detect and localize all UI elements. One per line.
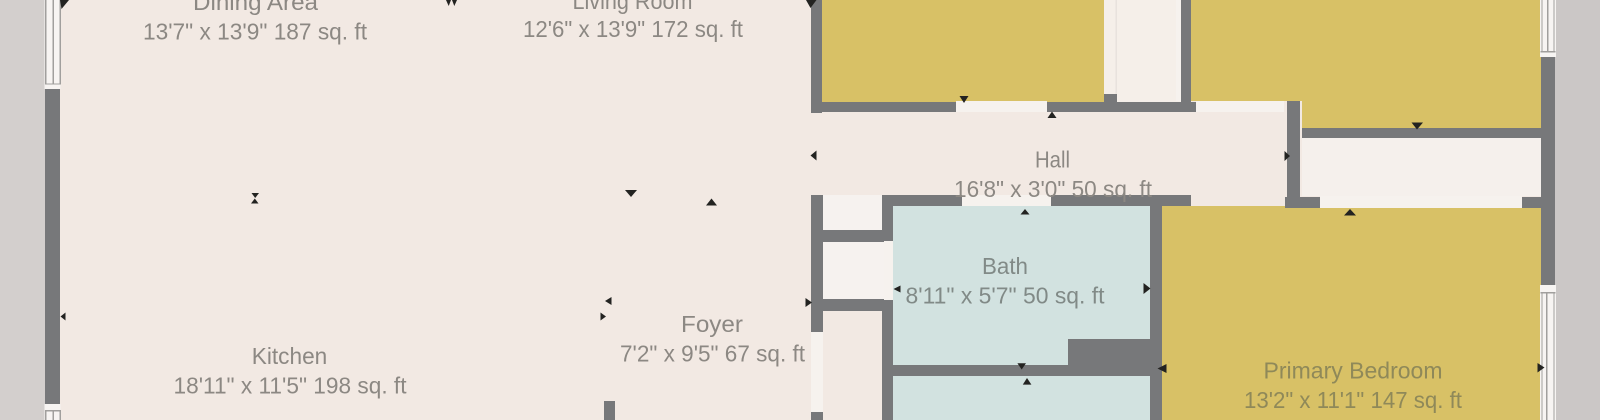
svg-text:12'6" x 13'9" 172 sq. ft: 12'6" x 13'9" 172 sq. ft — [523, 16, 744, 42]
svg-text:Foyer: Foyer — [681, 311, 743, 337]
svg-text:7'2" x 9'5" 67 sq. ft: 7'2" x 9'5" 67 sq. ft — [620, 341, 806, 367]
svg-text:Living Room: Living Room — [573, 0, 693, 14]
svg-text:Primary Bedroom: Primary Bedroom — [1264, 358, 1443, 384]
svg-text:Hall: Hall — [1035, 147, 1070, 173]
svg-text:16'8" x 3'0" 50 sq. ft: 16'8" x 3'0" 50 sq. ft — [954, 176, 1153, 202]
svg-text:Dining Area: Dining Area — [193, 0, 318, 15]
svg-text:13'2" x 11'1" 147 sq. ft: 13'2" x 11'1" 147 sq. ft — [1244, 387, 1463, 413]
svg-text:Kitchen: Kitchen — [252, 343, 328, 369]
svg-text:13'7" x 13'9" 187 sq. ft: 13'7" x 13'9" 187 sq. ft — [143, 19, 368, 45]
svg-text:Bath: Bath — [982, 253, 1028, 279]
svg-text:8'11" x 5'7" 50 sq. ft: 8'11" x 5'7" 50 sq. ft — [906, 283, 1106, 309]
svg-text:18'11" x 11'5" 198 sq. ft: 18'11" x 11'5" 198 sq. ft — [174, 373, 408, 399]
